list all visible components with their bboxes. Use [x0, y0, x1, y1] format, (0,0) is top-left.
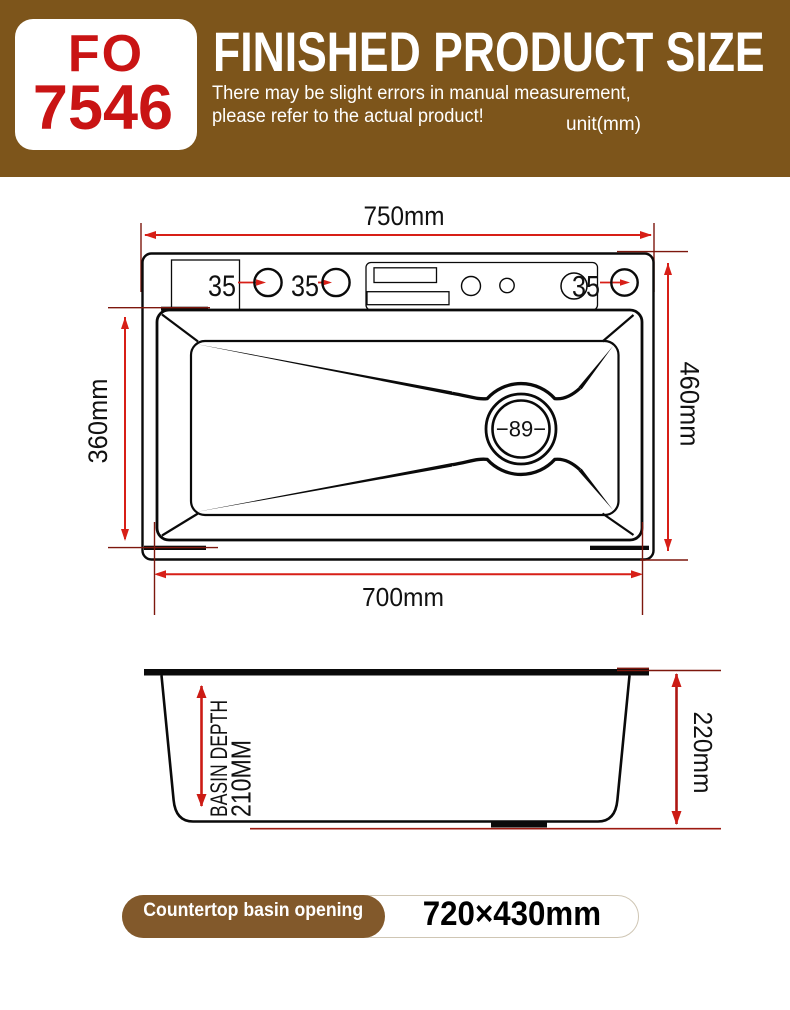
svg-text:460mm: 460mm [675, 362, 705, 447]
svg-text:220mm: 220mm [688, 712, 718, 794]
svg-text:750mm: 750mm [364, 201, 445, 231]
svg-text:210MM: 210MM [226, 740, 257, 817]
svg-text:700mm: 700mm [362, 582, 444, 612]
svg-text:35: 35 [291, 270, 319, 303]
svg-text:35: 35 [208, 270, 236, 303]
svg-text:360mm: 360mm [83, 379, 113, 464]
svg-text:−89−: −89− [496, 417, 546, 442]
svg-text:35: 35 [572, 271, 600, 304]
